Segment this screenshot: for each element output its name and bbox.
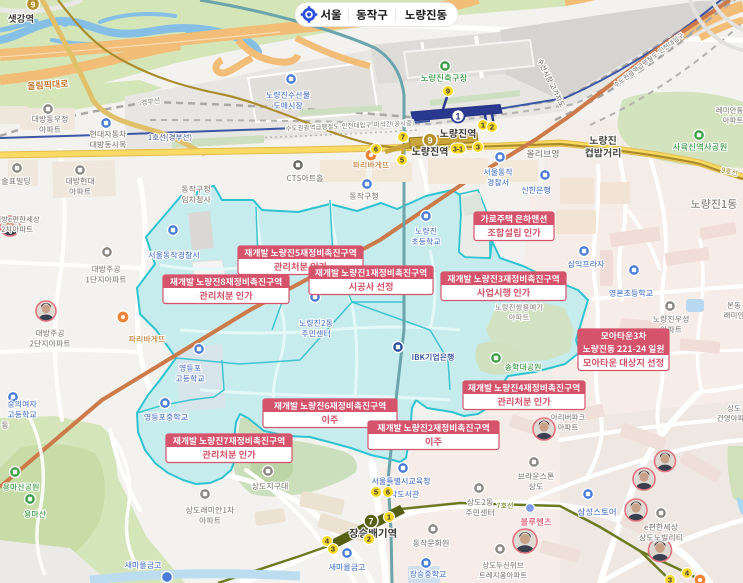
svg-text:3-1: 3-1 bbox=[453, 147, 463, 154]
svg-text:1: 1 bbox=[387, 513, 391, 522]
svg-text:3: 3 bbox=[668, 576, 672, 583]
svg-text:2: 2 bbox=[367, 535, 371, 544]
svg-text:3: 3 bbox=[476, 143, 480, 152]
svg-text:7: 7 bbox=[368, 517, 373, 527]
svg-text:9: 9 bbox=[427, 136, 432, 146]
svg-text:6: 6 bbox=[386, 488, 390, 497]
svg-text:9: 9 bbox=[446, 87, 450, 96]
svg-text:9: 9 bbox=[31, 0, 36, 10]
svg-text:2: 2 bbox=[490, 123, 494, 132]
svg-text:1: 1 bbox=[481, 121, 485, 130]
svg-text:1: 1 bbox=[455, 112, 460, 122]
svg-text:3: 3 bbox=[331, 545, 335, 554]
svg-text:6: 6 bbox=[374, 145, 378, 154]
svg-text:5: 5 bbox=[374, 488, 378, 497]
svg-text:7: 7 bbox=[401, 133, 405, 142]
svg-text:5: 5 bbox=[400, 156, 404, 165]
